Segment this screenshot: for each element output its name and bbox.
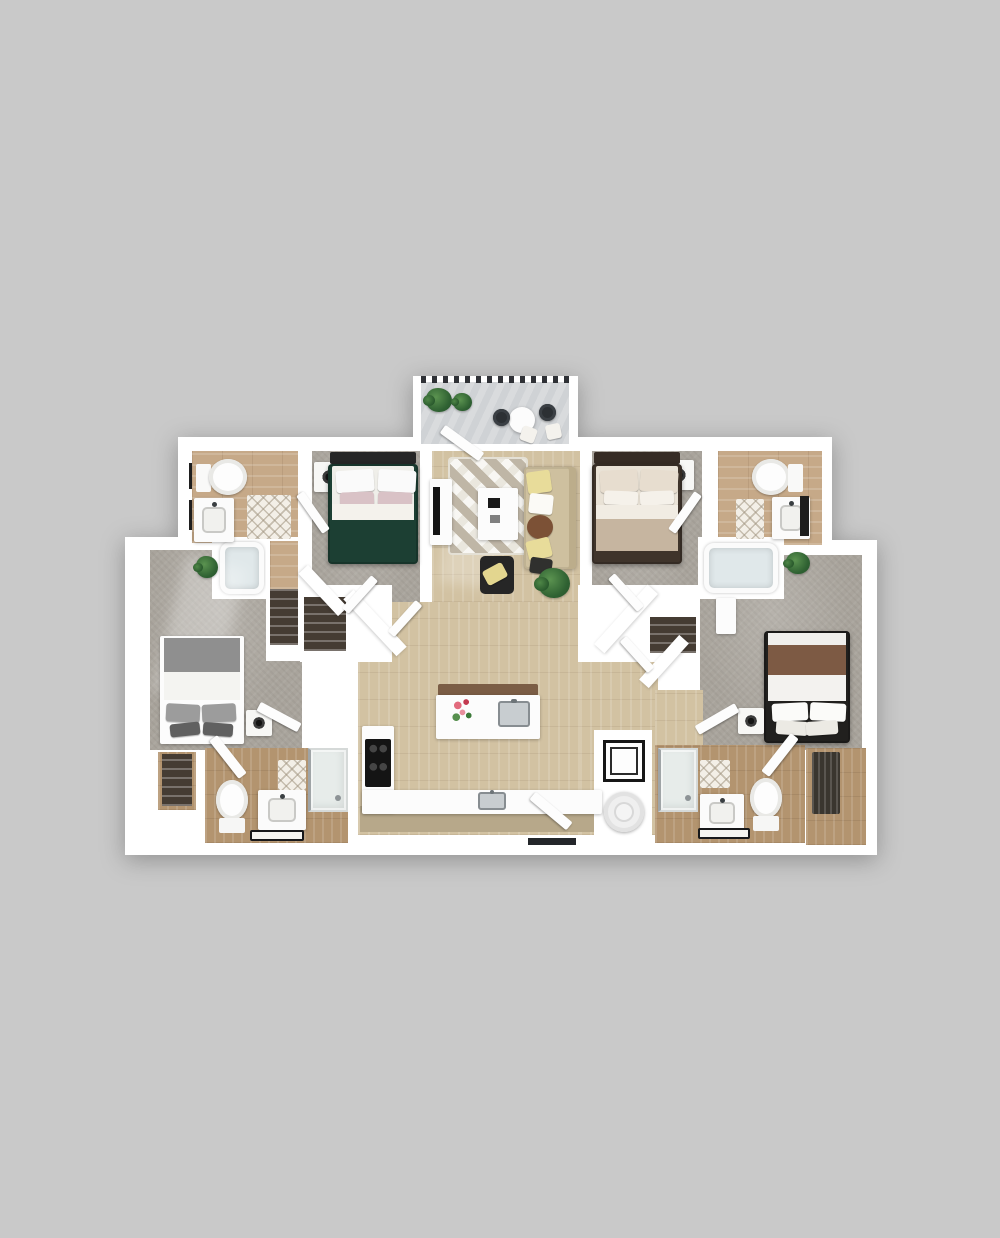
closet-strip-1-shelves [270, 589, 298, 645]
hall-4-floor [655, 690, 703, 748]
bed-2-pillow-2 [639, 469, 678, 494]
vanity-1 [194, 498, 234, 542]
balcony-chair-1 [493, 409, 510, 426]
living-plant [538, 568, 570, 598]
vanity-3 [258, 790, 306, 830]
island-sink [498, 701, 530, 727]
closet-strip-1-floor [270, 541, 298, 589]
towel-bar-1 [189, 463, 192, 489]
bed-4-pillow-1 [772, 702, 809, 722]
balcony-plant-1 [426, 388, 452, 412]
toilet-3-bowl [216, 780, 248, 820]
bed-1-sheet-band [332, 504, 414, 520]
bathtub-2 [704, 543, 778, 593]
bedroom-4-plant [786, 552, 810, 574]
toilet-4-tank [753, 816, 779, 831]
bed-2-headboard [594, 452, 680, 464]
tile-accent-3 [278, 760, 306, 790]
kitchen-sink [478, 792, 506, 810]
bed-4-blanket [768, 645, 846, 675]
bed-3-pillow-1 [166, 703, 201, 723]
coffee-table [478, 488, 518, 540]
entry-threshold [528, 838, 576, 845]
bath-mat-3 [250, 830, 304, 841]
bedroom-3-plant [196, 556, 218, 578]
coffee-table-decor-1 [488, 498, 500, 508]
island-flower-vase [450, 697, 476, 725]
toilet-2-tank [788, 464, 803, 492]
bed-4-top-band [768, 633, 846, 645]
toilet-1-bowl [209, 459, 247, 495]
bed-3-pillow-2 [202, 703, 237, 723]
sofa-pillow-1 [526, 469, 553, 494]
bed-1-pillow-1 [335, 469, 374, 494]
closet-3-shelves [162, 754, 192, 806]
balcony-railing [421, 376, 569, 383]
rooms-and-furniture-layer [0, 0, 1000, 1238]
towel-shelf-2 [800, 496, 809, 536]
coffee-table-decor-2 [490, 515, 500, 523]
closet-4-clothes [812, 752, 840, 814]
towel-bar-2 [189, 500, 192, 530]
bed-1-pillow-2 [377, 469, 416, 493]
toilet-4-bowl [750, 778, 782, 818]
bath-mat-1 [247, 495, 291, 539]
floor-plan [0, 0, 1000, 1238]
bed-2-pillow-1 [599, 469, 638, 493]
bed-3-blanket [164, 638, 240, 672]
toilet-3-tank [219, 818, 245, 833]
nightstand-4 [738, 708, 764, 734]
tv [433, 487, 440, 535]
balcony-plant-2 [453, 393, 472, 411]
bedroom-4-shelf [716, 598, 736, 634]
balcony-seat-2 [545, 423, 563, 441]
bed-2-blanket [596, 519, 678, 551]
utility-cabinet [603, 740, 645, 782]
bed-3-duvet [164, 672, 240, 700]
bed-4-duvet [768, 675, 846, 701]
bath-mat-4 [698, 828, 750, 839]
stove-cooktop [365, 739, 391, 787]
bath-mat-2 [736, 499, 764, 539]
sofa-pillow-2 [528, 493, 554, 515]
bed-2-sheet-band [596, 505, 678, 519]
toilet-2-bowl [752, 459, 790, 495]
balcony-chair-2 [539, 404, 556, 421]
bed-1-headboard [330, 452, 416, 464]
bed-4-accent-pillow-2 [806, 720, 839, 736]
bed-4-pillow-2 [810, 702, 847, 722]
bed-2-accent-pillow-1 [604, 490, 638, 505]
bed-2-accent-pillow-2 [640, 490, 674, 505]
sofa-pillow-3 [527, 515, 553, 539]
vanity-4 [700, 794, 744, 832]
tile-accent-4 [700, 760, 730, 788]
shower-4 [658, 748, 698, 812]
washer-dryer [604, 792, 644, 832]
shower-3 [308, 748, 348, 812]
bed-3-accent-pillow-2 [203, 722, 234, 737]
